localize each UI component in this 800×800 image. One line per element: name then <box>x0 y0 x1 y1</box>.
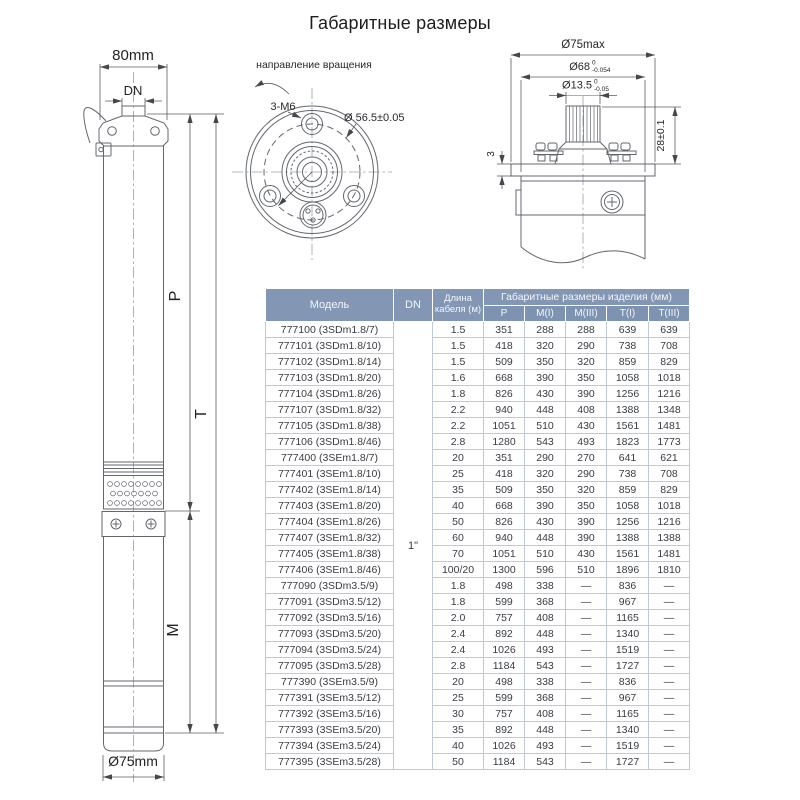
m-dim-label: M <box>165 623 182 636</box>
cell-m1: 448 <box>525 402 566 418</box>
cell-m3: 350 <box>566 370 607 386</box>
plate3-label: 3 <box>486 151 497 157</box>
cell-t3: — <box>649 658 690 674</box>
d135-tol-lower: -0.05 <box>594 86 609 93</box>
cell-p: 351 <box>484 322 525 338</box>
col-header-cable: Длина кабеля (м) <box>433 289 484 322</box>
cell-m3: — <box>566 626 607 642</box>
col-header-t3: T(III) <box>649 306 690 322</box>
cell-m1: 510 <box>525 418 566 434</box>
rotation-arrow <box>255 83 289 94</box>
cell-dn: 1" <box>394 322 433 770</box>
cell-model: 777107 (3SDm1.8/32) <box>266 402 394 418</box>
cell-m1: 543 <box>525 754 566 770</box>
cell-model: 777394 (3SEm3.5/24) <box>266 738 394 754</box>
cell-m1: 338 <box>525 674 566 690</box>
cell-cable: 1.5 <box>433 338 484 354</box>
d135-label: Ø13.5 <box>562 80 592 92</box>
cell-t3: — <box>649 690 690 706</box>
cell-p: 418 <box>484 466 525 482</box>
d68-tol-lower: -0.054 <box>592 67 611 74</box>
cell-m3: 350 <box>566 498 607 514</box>
cell-t3: — <box>649 594 690 610</box>
cell-t1: 1340 <box>607 626 649 642</box>
cell-cable: 25 <box>433 690 484 706</box>
table-row: 777101 (3SDm1.8/10)1.5418320290738708 <box>266 338 690 354</box>
cell-m3: 390 <box>566 514 607 530</box>
table-row: 777104 (3SDm1.8/26)1.882643039012561216 <box>266 386 690 402</box>
table-row: 777392 (3SEm3.5/16)30757408—1165— <box>266 706 690 722</box>
cell-m3: — <box>566 706 607 722</box>
cell-t3: — <box>649 578 690 594</box>
cell-m3: 320 <box>566 354 607 370</box>
bolt-spec-label: 3-M6 <box>270 101 295 113</box>
cell-cable: 20 <box>433 674 484 690</box>
cell-p: 668 <box>484 498 525 514</box>
table-row: 777095 (3SDm3.5/28)2.81184543—1727— <box>266 658 690 674</box>
cell-t3: 1810 <box>649 562 690 578</box>
cell-t3: 1018 <box>649 498 690 514</box>
cell-t1: 1388 <box>607 402 649 418</box>
cell-m3: — <box>566 578 607 594</box>
cell-m1: 408 <box>525 706 566 722</box>
cell-cable: 100/20 <box>433 562 484 578</box>
cell-cable: 20 <box>433 450 484 466</box>
cell-t1: 1561 <box>607 418 649 434</box>
cell-model: 777407 (3SEm1.8/32) <box>266 530 394 546</box>
cell-p: 599 <box>484 690 525 706</box>
cell-model: 777102 (3SDm1.8/14) <box>266 354 394 370</box>
cell-m1: 448 <box>525 626 566 642</box>
cell-m3: 288 <box>566 322 607 338</box>
cell-m3: — <box>566 690 607 706</box>
cell-m3: 290 <box>566 338 607 354</box>
table-row: 777092 (3SDm3.5/16)2.0757408—1165— <box>266 610 690 626</box>
cell-model: 777090 (3SDm3.5/9) <box>266 578 394 594</box>
col-header-m3: M(III) <box>566 306 607 322</box>
rotation-direction-label: направление вращения <box>256 59 372 71</box>
cell-t3: — <box>649 754 690 770</box>
cell-t1: 1519 <box>607 738 649 754</box>
cell-cable: 1.8 <box>433 386 484 402</box>
cell-m3: 493 <box>566 434 607 450</box>
cell-t1: 967 <box>607 594 649 610</box>
cell-model: 777104 (3SDm1.8/26) <box>266 386 394 402</box>
cell-t1: 859 <box>607 354 649 370</box>
cell-t3: 1481 <box>649 418 690 434</box>
dn-dim-label: DN <box>124 83 143 98</box>
cell-model: 777091 (3SDm3.5/12) <box>266 594 394 610</box>
cell-p: 1026 <box>484 738 525 754</box>
table-row: 777090 (3SDm3.5/9)1.8498338—836— <box>266 578 690 594</box>
cell-cable: 2.0 <box>433 610 484 626</box>
cell-t1: 738 <box>607 466 649 482</box>
screen-holes <box>108 482 162 506</box>
cell-m1: 408 <box>525 610 566 626</box>
cell-model: 777393 (3SEm3.5/20) <box>266 722 394 738</box>
cell-p: 1300 <box>484 562 525 578</box>
cell-t3: 1348 <box>649 402 690 418</box>
cell-model: 777390 (3SEm3.5/9) <box>266 674 394 690</box>
cell-model: 777401 (3SEm1.8/10) <box>266 466 394 482</box>
cell-cable: 2.4 <box>433 642 484 658</box>
cell-m1: 338 <box>525 578 566 594</box>
d68-label: Ø68 <box>569 61 590 73</box>
cell-cable: 50 <box>433 754 484 770</box>
cell-cable: 1.5 <box>433 322 484 338</box>
cell-m3: — <box>566 642 607 658</box>
bolt-circle-label: Ø 56.5±0.05 <box>344 112 404 124</box>
cell-cable: 35 <box>433 722 484 738</box>
shaft-detail-view: Ø75max Ø68 0 -0.054 Ø13.5 0 -0.05 28±0.1… <box>478 15 696 281</box>
cell-p: 757 <box>484 706 525 722</box>
cell-m1: 430 <box>525 514 566 530</box>
cell-model: 777405 (3SEm1.8/38) <box>266 546 394 562</box>
cell-m3: 390 <box>566 530 607 546</box>
dimension-table: Модель DN Длина кабеля (м) Габаритные ра… <box>265 288 690 770</box>
cell-model: 777093 (3SDm3.5/20) <box>266 626 394 642</box>
col-header-dimensions: Габаритные размеры изделия (мм) <box>484 289 690 306</box>
cell-model: 777094 (3SDm3.5/24) <box>266 642 394 658</box>
cell-model: 777095 (3SDm3.5/28) <box>266 658 394 674</box>
pump-top-view: направление вращения 3-M6 Ø 56.5±0.05 <box>228 52 428 264</box>
cell-m1: 448 <box>525 530 566 546</box>
cell-p: 1184 <box>484 658 525 674</box>
cell-m3: 290 <box>566 466 607 482</box>
cell-p: 940 <box>484 402 525 418</box>
cell-model: 777406 (3SEm1.8/46) <box>266 562 394 578</box>
cell-cable: 25 <box>433 466 484 482</box>
bolt-hole <box>260 186 281 207</box>
cell-model: 777101 (3SDm1.8/10) <box>266 338 394 354</box>
cell-cable: 1.6 <box>433 370 484 386</box>
cell-model: 777402 (3SEm1.8/14) <box>266 482 394 498</box>
cell-m1: 543 <box>525 434 566 450</box>
d68-tol-upper: 0 <box>592 60 596 67</box>
cell-m1: 510 <box>525 546 566 562</box>
cell-t1: 1727 <box>607 658 649 674</box>
cell-m3: — <box>566 674 607 690</box>
cell-model: 777404 (3SEm1.8/26) <box>266 514 394 530</box>
cell-t1: 1256 <box>607 386 649 402</box>
dimensions <box>100 64 224 781</box>
cell-p: 418 <box>484 338 525 354</box>
table-row: 777102 (3SDm1.8/14)1.5509350320859829 <box>266 354 690 370</box>
cell-t3: — <box>649 722 690 738</box>
cell-t1: 1165 <box>607 610 649 626</box>
cell-p: 826 <box>484 514 525 530</box>
cell-m1: 320 <box>525 338 566 354</box>
table-row: 777093 (3SDm3.5/20)2.4892448—1340— <box>266 626 690 642</box>
cell-model: 777395 (3SEm3.5/28) <box>266 754 394 770</box>
cell-p: 757 <box>484 610 525 626</box>
cell-m1: 368 <box>525 690 566 706</box>
cell-cable: 35 <box>433 482 484 498</box>
cell-t3: 1018 <box>649 370 690 386</box>
cell-t3: — <box>649 706 690 722</box>
cell-t3: — <box>649 642 690 658</box>
table-row: 777106 (3SDm1.8/46)2.8128054349318231773 <box>266 434 690 450</box>
table-row: 777091 (3SDm3.5/12)1.8599368—967— <box>266 594 690 610</box>
cell-p: 892 <box>484 626 525 642</box>
cell-p: 351 <box>484 450 525 466</box>
cell-t3: 1216 <box>649 514 690 530</box>
cell-t1: 738 <box>607 338 649 354</box>
cell-model: 777103 (3SDm1.8/20) <box>266 370 394 386</box>
table-row: 777405 (3SEm1.8/38)70105151043015611481 <box>266 546 690 562</box>
cell-model: 777403 (3SEm1.8/20) <box>266 498 394 514</box>
cell-model: 777392 (3SEm3.5/16) <box>266 706 394 722</box>
cell-m1: 350 <box>525 354 566 370</box>
col-header-t1: T(I) <box>607 306 649 322</box>
diameter-dim-label: Ø75mm <box>108 753 158 769</box>
cell-t1: 1256 <box>607 514 649 530</box>
cell-cable: 2.8 <box>433 434 484 450</box>
cell-m3: — <box>566 594 607 610</box>
body-screw <box>601 191 623 213</box>
cell-model: 777106 (3SDm1.8/46) <box>266 434 394 450</box>
cell-t3: 829 <box>649 482 690 498</box>
cell-p: 1051 <box>484 546 525 562</box>
col-header-dn: DN <box>394 289 433 322</box>
cell-p: 599 <box>484 594 525 610</box>
cell-p: 509 <box>484 354 525 370</box>
cell-m1: 290 <box>525 450 566 466</box>
cell-m3: 390 <box>566 386 607 402</box>
cell-t3: — <box>649 674 690 690</box>
cell-model: 777100 (3SDm1.8/7) <box>266 322 394 338</box>
col-header-model: Модель <box>266 289 394 322</box>
power-cable <box>84 108 106 143</box>
cell-cable: 70 <box>433 546 484 562</box>
cell-cable: 60 <box>433 530 484 546</box>
table-row: 777395 (3SEm3.5/28)501184543—1727— <box>266 754 690 770</box>
cable-connector <box>300 202 326 228</box>
cell-t1: 836 <box>607 578 649 594</box>
cell-t1: 836 <box>607 674 649 690</box>
cell-cable: 30 <box>433 706 484 722</box>
cell-t1: 859 <box>607 482 649 498</box>
cell-t1: 1727 <box>607 754 649 770</box>
height28-label: 28±0.1 <box>655 119 667 151</box>
cell-m1: 493 <box>525 642 566 658</box>
cell-t3: 1481 <box>649 546 690 562</box>
clamp-bolt-right <box>607 143 636 161</box>
cell-t1: 1340 <box>607 722 649 738</box>
cell-m3: 430 <box>566 546 607 562</box>
table-row: 777391 (3SEm3.5/12)25599368—967— <box>266 690 690 706</box>
d75-label: Ø75max <box>561 39 605 51</box>
cell-m1: 493 <box>525 738 566 754</box>
table-row: 777403 (3SEm1.8/20)4066839035010581018 <box>266 498 690 514</box>
cell-p: 892 <box>484 722 525 738</box>
cell-m1: 448 <box>525 722 566 738</box>
cell-t1: 641 <box>607 450 649 466</box>
cell-m3: 510 <box>566 562 607 578</box>
cell-t1: 1896 <box>607 562 649 578</box>
cell-m3: 270 <box>566 450 607 466</box>
table-body: 777100 (3SDm1.8/7)1"1.535128828863963977… <box>266 322 690 770</box>
cell-p: 498 <box>484 674 525 690</box>
cell-cable: 2.2 <box>433 418 484 434</box>
col-header-p: P <box>484 306 525 322</box>
cell-m3: — <box>566 738 607 754</box>
table-row: 777401 (3SEm1.8/10)25418320290738708 <box>266 466 690 482</box>
cell-m3: 320 <box>566 482 607 498</box>
cell-cable: 40 <box>433 738 484 754</box>
cell-model: 777400 (3SEm1.8/7) <box>266 450 394 466</box>
table-row: 777404 (3SEm1.8/26)5082643039012561216 <box>266 514 690 530</box>
t-dim-label: T <box>193 409 210 419</box>
cell-m1: 596 <box>525 562 566 578</box>
cell-p: 1280 <box>484 434 525 450</box>
cell-m1: 368 <box>525 594 566 610</box>
cell-m1: 350 <box>525 482 566 498</box>
cell-cable: 40 <box>433 498 484 514</box>
cell-m3: — <box>566 722 607 738</box>
cell-p: 509 <box>484 482 525 498</box>
cell-m1: 390 <box>525 370 566 386</box>
cell-t3: 829 <box>649 354 690 370</box>
cell-t1: 1058 <box>607 498 649 514</box>
col-header-m1: M(I) <box>525 306 566 322</box>
cell-m3: 430 <box>566 418 607 434</box>
p-dim-label: P <box>167 291 184 302</box>
cell-cable: 2.2 <box>433 402 484 418</box>
cell-model: 777391 (3SEm3.5/12) <box>266 690 394 706</box>
cell-t3: 1773 <box>649 434 690 450</box>
cell-p: 826 <box>484 386 525 402</box>
cell-p: 1026 <box>484 642 525 658</box>
cell-t3: 1388 <box>649 530 690 546</box>
cell-cable: 1.5 <box>433 354 484 370</box>
table-row: 777094 (3SDm3.5/24)2.41026493—1519— <box>266 642 690 658</box>
cell-t3: 1216 <box>649 386 690 402</box>
cell-cable: 2.4 <box>433 626 484 642</box>
table-row: 777406 (3SEm1.8/46)100/20130059651018961… <box>266 562 690 578</box>
cell-p: 498 <box>484 578 525 594</box>
table-row: 777103 (3SDm1.8/20)1.666839035010581018 <box>266 370 690 386</box>
cell-cable: 1.8 <box>433 594 484 610</box>
cell-p: 668 <box>484 370 525 386</box>
cell-t1: 1519 <box>607 642 649 658</box>
cell-t3: 621 <box>649 450 690 466</box>
cell-t3: — <box>649 738 690 754</box>
cell-t3: 708 <box>649 466 690 482</box>
cell-model: 777092 (3SDm3.5/16) <box>266 610 394 626</box>
cell-cable: 50 <box>433 514 484 530</box>
cell-m3: 408 <box>566 402 607 418</box>
cell-p: 940 <box>484 530 525 546</box>
pump-body-outline <box>84 106 168 751</box>
cell-t1: 639 <box>607 322 649 338</box>
cell-cable: 2.8 <box>433 658 484 674</box>
table-row: 777105 (3SDm1.8/38)2.2105151043015611481 <box>266 418 690 434</box>
cell-t1: 1561 <box>607 546 649 562</box>
pump-side-view: 80mm DN P T M Ø75mm <box>55 38 247 790</box>
table-row: 777402 (3SEm1.8/14)35509350320859829 <box>266 482 690 498</box>
table-row: 777400 (3SEm1.8/7)20351290270641621 <box>266 450 690 466</box>
cell-m1: 543 <box>525 658 566 674</box>
cell-cable: 1.8 <box>433 578 484 594</box>
cell-m3: — <box>566 610 607 626</box>
table-row: 777407 (3SEm1.8/32)6094044839013881388 <box>266 530 690 546</box>
cell-t1: 967 <box>607 690 649 706</box>
cell-m1: 390 <box>525 498 566 514</box>
table-row: 777107 (3SDm1.8/32)2.294044840813881348 <box>266 402 690 418</box>
cell-m1: 288 <box>525 322 566 338</box>
width-dim-label: 80mm <box>112 47 154 64</box>
cell-m3: — <box>566 754 607 770</box>
d135-tol-upper: 0 <box>594 79 598 86</box>
cell-m1: 430 <box>525 386 566 402</box>
table-row: 777393 (3SEm3.5/20)35892448—1340— <box>266 722 690 738</box>
cell-p: 1051 <box>484 418 525 434</box>
cell-model: 777105 (3SDm1.8/38) <box>266 418 394 434</box>
table-row: 777394 (3SEm3.5/24)401026493—1519— <box>266 738 690 754</box>
cell-t3: 639 <box>649 322 690 338</box>
dimensions <box>497 55 681 189</box>
cell-t1: 1388 <box>607 530 649 546</box>
cell-m1: 320 <box>525 466 566 482</box>
cell-t1: 1823 <box>607 434 649 450</box>
cell-t3: 708 <box>649 338 690 354</box>
table-row: 777390 (3SEm3.5/9)20498338—836— <box>266 674 690 690</box>
cell-t1: 1165 <box>607 706 649 722</box>
cell-p: 1184 <box>484 754 525 770</box>
cell-t3: — <box>649 610 690 626</box>
cell-t3: — <box>649 626 690 642</box>
table-row: 777100 (3SDm1.8/7)1"1.5351288288639639 <box>266 322 690 338</box>
cell-t1: 1058 <box>607 370 649 386</box>
cell-m3: — <box>566 658 607 674</box>
